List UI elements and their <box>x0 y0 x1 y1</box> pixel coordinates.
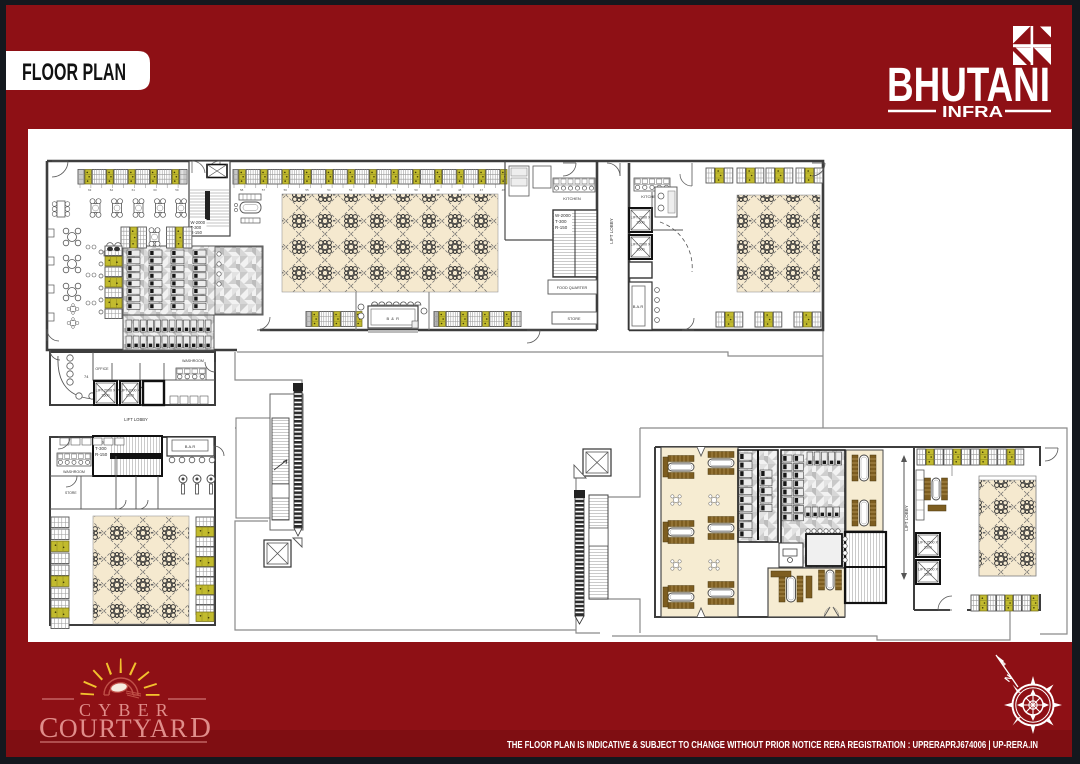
svg-text:LIFT LOBBY: LIFT LOBBY <box>904 505 909 530</box>
svg-text:60: 60 <box>153 188 157 192</box>
svg-text:WASHROOM: WASHROOM <box>182 359 204 363</box>
svg-text:63: 63 <box>88 188 92 192</box>
svg-text:56: 56 <box>284 188 288 192</box>
svg-text:LIFT 2500 X: LIFT 2500 X <box>918 568 938 572</box>
svg-text:B.A.R: B.A.R <box>185 444 196 449</box>
svg-text:LIFT 2000 X: LIFT 2000 X <box>631 216 651 220</box>
svg-text:2500: 2500 <box>126 394 134 398</box>
svg-text:74: 74 <box>84 374 89 379</box>
svg-text:2500: 2500 <box>102 394 110 398</box>
svg-text:2500: 2500 <box>637 248 645 252</box>
svg-text:55: 55 <box>305 188 309 192</box>
svg-text:LIFT 2500 X: LIFT 2500 X <box>918 541 938 545</box>
svg-text:B & R: B & R <box>387 316 400 321</box>
svg-text:62: 62 <box>110 188 114 192</box>
svg-text:STORE: STORE <box>567 317 580 321</box>
svg-text:54: 54 <box>327 188 331 192</box>
svg-text:INFRA: INFRA <box>942 104 1004 121</box>
svg-text:COURTYARD: COURTYARD <box>39 712 211 744</box>
svg-text:LIFT 2000 X: LIFT 2000 X <box>631 243 651 247</box>
svg-text:FOOD QUARTER: FOOD QUARTER <box>557 286 588 290</box>
svg-text:KITCHEN: KITCHEN <box>563 196 581 201</box>
svg-text:R-150: R-150 <box>95 452 108 457</box>
svg-text:LIFT 2000 X: LIFT 2000 X <box>96 389 116 393</box>
svg-text:OFFICE: OFFICE <box>95 367 109 371</box>
svg-text:49: 49 <box>436 188 440 192</box>
svg-text:50: 50 <box>414 188 418 192</box>
svg-text:2500: 2500 <box>637 221 645 225</box>
svg-text:59: 59 <box>175 188 179 192</box>
svg-text:LIFT LOBBY: LIFT LOBBY <box>124 417 148 422</box>
svg-text:LIFT 2000 X: LIFT 2000 X <box>120 389 140 393</box>
svg-text:LIFT LOBBY: LIFT LOBBY <box>609 218 614 243</box>
svg-text:53: 53 <box>349 188 353 192</box>
svg-text:T-300: T-300 <box>95 446 107 451</box>
svg-text:52: 52 <box>371 188 375 192</box>
svg-text:2500: 2500 <box>924 573 932 577</box>
svg-text:WASHROOM: WASHROOM <box>63 470 85 474</box>
svg-text:B.A.R: B.A.R <box>633 304 644 309</box>
svg-text:61: 61 <box>132 188 136 192</box>
svg-text:STORE: STORE <box>65 491 77 495</box>
svg-text:58: 58 <box>240 188 244 192</box>
svg-text:46: 46 <box>502 188 506 192</box>
svg-text:R-150: R-150 <box>555 225 568 230</box>
svg-text:W-2000: W-2000 <box>555 213 571 218</box>
svg-text:48: 48 <box>458 188 462 192</box>
svg-text:57: 57 <box>262 188 266 192</box>
svg-text:47: 47 <box>480 188 484 192</box>
svg-text:51: 51 <box>393 188 397 192</box>
svg-text:2500: 2500 <box>924 546 932 550</box>
svg-text:FLOOR PLAN: FLOOR PLAN <box>22 59 126 86</box>
svg-text:THE FLOOR PLAN IS INDICATIVE &: THE FLOOR PLAN IS INDICATIVE & SUBJECT T… <box>507 740 1038 751</box>
svg-text:T-300: T-300 <box>555 219 567 224</box>
